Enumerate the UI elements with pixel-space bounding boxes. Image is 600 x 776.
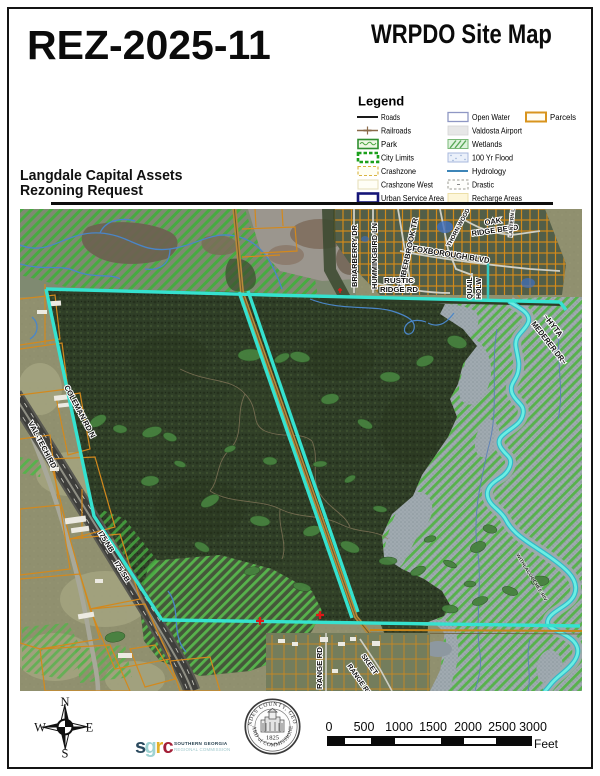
- svg-text:W: W: [34, 721, 46, 735]
- svg-text:REGIONAL COMMISSION: REGIONAL COMMISSION: [174, 747, 230, 752]
- svg-text:Parcels: Parcels: [550, 112, 576, 122]
- svg-text:1000: 1000: [385, 720, 413, 734]
- svg-text:SOUTHERN GEORGIA: SOUTHERN GEORGIA: [174, 741, 228, 746]
- svg-text:Wetlands: Wetlands: [472, 139, 502, 149]
- svg-text:3000: 3000: [519, 720, 547, 734]
- svg-text:1825: 1825: [266, 735, 279, 742]
- svg-text:Roads: Roads: [381, 112, 400, 122]
- svg-text:0: 0: [326, 720, 333, 734]
- svg-text:500: 500: [354, 720, 375, 734]
- svg-text:E: E: [86, 721, 94, 735]
- svg-text:Railroads: Railroads: [381, 126, 411, 136]
- svg-text:HUMMINGBIRD LN: HUMMINGBIRD LN: [370, 223, 379, 289]
- svg-text:Hydrology: Hydrology: [472, 166, 507, 176]
- svg-text:QUAIL: QUAIL: [467, 277, 474, 300]
- svg-text:Valdosta Airport: Valdosta Airport: [472, 126, 523, 136]
- svg-text:BRIARBERRY DR: BRIARBERRY DR: [350, 224, 359, 287]
- svg-text:RUSTIC: RUSTIC: [384, 276, 415, 285]
- svg-text:2000: 2000: [454, 720, 482, 734]
- svg-text:Crashzone: Crashzone: [381, 166, 416, 176]
- svg-text:RIDGE RD: RIDGE RD: [380, 285, 419, 294]
- svg-text:Crashzone West: Crashzone West: [381, 180, 434, 190]
- svg-text:Drastic: Drastic: [472, 180, 495, 190]
- svg-text:c: c: [163, 736, 174, 758]
- svg-text:1500: 1500: [419, 720, 447, 734]
- svg-text:City Limits: City Limits: [381, 153, 414, 163]
- svg-text:Legend: Legend: [358, 94, 404, 109]
- svg-text:2500: 2500: [488, 720, 516, 734]
- svg-text:RANGE RD: RANGE RD: [315, 646, 324, 689]
- svg-text:N: N: [60, 695, 69, 709]
- svg-text:Feet: Feet: [534, 737, 559, 751]
- svg-text:S: S: [62, 747, 69, 761]
- svg-text:100 Yr Flood: 100 Yr Flood: [472, 153, 513, 163]
- svg-text:Open Water: Open Water: [472, 112, 510, 122]
- svg-text:Park: Park: [381, 139, 398, 149]
- svg-text:HOLW: HOLW: [476, 278, 483, 299]
